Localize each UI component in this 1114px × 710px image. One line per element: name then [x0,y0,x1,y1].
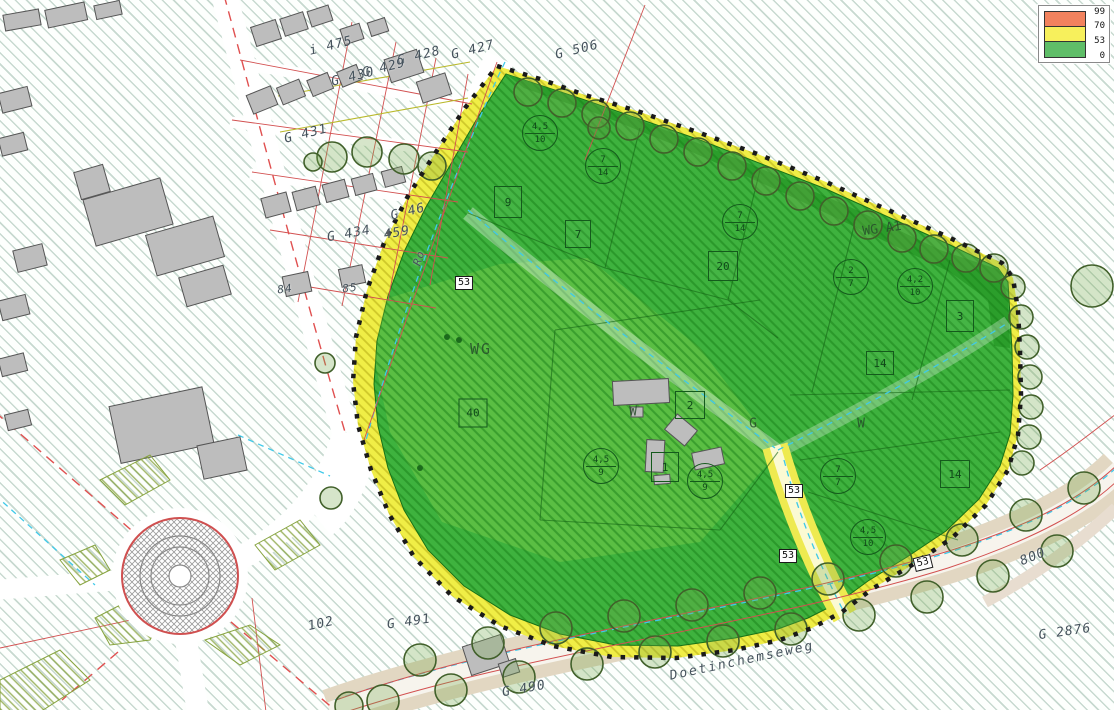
legend-tick: 53 [1094,36,1105,46]
height-circle: 4,210 [897,268,933,304]
noise-contour-marker: 53 [785,484,803,498]
height-circle: 27 [833,259,869,295]
height-circle: 4,59 [687,463,723,499]
height-circle: 4,59 [583,448,619,484]
plot-number-box: 2 [675,391,705,419]
legend-band-orange [1045,12,1085,27]
plot-number-box: 20 [708,251,738,281]
plot-number-box: 7 [565,220,591,248]
legend-tick: 99 [1094,7,1105,17]
plot-number-box: 40 [459,399,488,428]
noise-contour-marker: 53 [455,276,473,290]
plot-number-box: 3 [946,300,974,332]
map-canvas[interactable]: i 475 G 428 G 427 G 429 G 430 G 506 G 43… [0,0,1114,710]
height-circle: 77 [820,458,856,494]
noise-contour-marker: 53 [779,549,797,563]
map-graphics [0,0,1114,710]
legend-tick: 0 [1100,51,1105,61]
zone-label-wg: WG [470,340,492,358]
height-circle: 714 [722,204,758,240]
parcel-label: 84 [277,282,294,297]
zone-label-w: W [857,417,865,432]
legend-band-green [1045,42,1085,57]
height-circle: 4,510 [522,115,558,151]
zone-label-g: G [749,417,757,432]
zone-label-w: W [629,405,637,420]
roundabout [112,508,248,644]
height-circle: 714 [585,148,621,184]
legend-color-scale [1044,11,1086,58]
parcel-label: 85 [342,281,359,296]
legend-tick: 70 [1094,21,1105,31]
height-circle: 4,510 [850,519,886,555]
legend-band-yellow [1045,27,1085,42]
plot-number-box: 14 [940,460,970,488]
plot-number-box: 1 [651,452,679,482]
plot-number-box: 9 [494,186,522,218]
noise-legend: 99 70 53 0 [1038,5,1110,63]
plot-number-box: 14 [866,351,894,375]
